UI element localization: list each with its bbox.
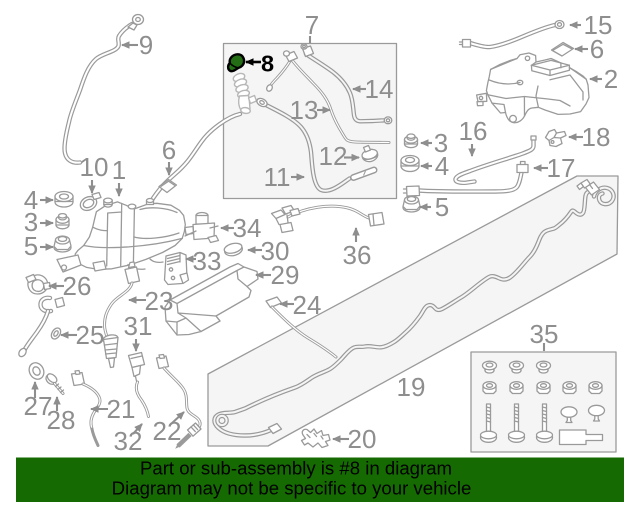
svg-text:6: 6 xyxy=(162,135,176,165)
svg-text:34: 34 xyxy=(233,213,262,243)
svg-text:21: 21 xyxy=(107,394,136,424)
svg-text:19: 19 xyxy=(397,372,426,402)
svg-text:Part or sub-assembly is #8 in: Part or sub-assembly is #8 in diagram xyxy=(140,458,452,479)
svg-text:1: 1 xyxy=(112,155,126,185)
svg-text:14: 14 xyxy=(365,74,394,104)
svg-text:33: 33 xyxy=(193,246,222,276)
svg-text:5: 5 xyxy=(24,231,38,261)
svg-text:24: 24 xyxy=(293,290,322,320)
svg-text:12: 12 xyxy=(319,141,348,171)
svg-text:Diagram may not be specific to: Diagram may not be specific to your vehi… xyxy=(112,478,472,499)
svg-text:31: 31 xyxy=(124,311,153,341)
svg-text:13: 13 xyxy=(290,95,319,125)
svg-text:10: 10 xyxy=(80,152,109,182)
svg-text:9: 9 xyxy=(139,30,153,60)
svg-text:36: 36 xyxy=(343,240,372,270)
svg-text:25: 25 xyxy=(76,320,105,350)
svg-text:2: 2 xyxy=(604,64,618,94)
svg-text:17: 17 xyxy=(547,153,576,183)
svg-text:4: 4 xyxy=(435,151,449,181)
svg-text:29: 29 xyxy=(271,260,300,290)
svg-text:28: 28 xyxy=(47,405,76,435)
svg-text:8: 8 xyxy=(261,51,274,77)
svg-text:20: 20 xyxy=(348,424,377,454)
svg-text:6: 6 xyxy=(590,34,604,64)
svg-text:22: 22 xyxy=(153,416,182,446)
svg-text:16: 16 xyxy=(459,116,488,146)
svg-text:32: 32 xyxy=(114,426,143,456)
svg-text:26: 26 xyxy=(63,271,92,301)
svg-text:11: 11 xyxy=(264,162,291,192)
svg-text:7: 7 xyxy=(305,10,319,40)
svg-text:5: 5 xyxy=(435,192,449,222)
svg-text:35: 35 xyxy=(530,319,559,349)
svg-text:18: 18 xyxy=(582,122,611,152)
